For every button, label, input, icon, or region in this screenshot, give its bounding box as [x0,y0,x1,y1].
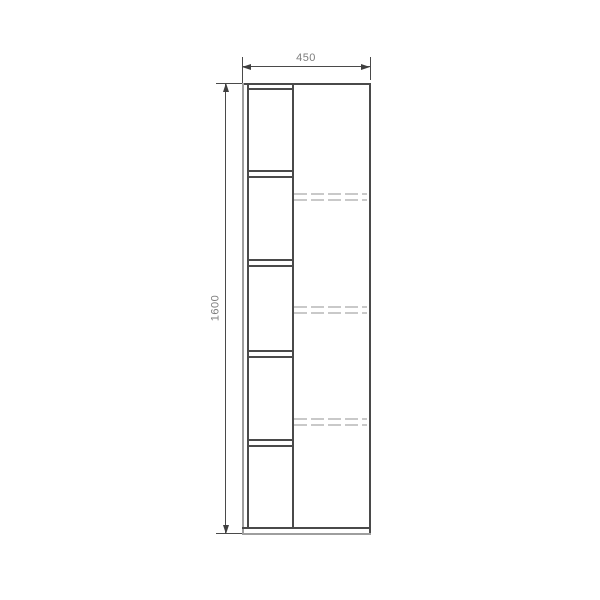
hidden-shelf-top-line [294,418,367,420]
hidden-shelf-bottom-line [294,424,367,426]
height-ext-line-top [216,83,242,84]
cabinet-divider [292,83,294,527]
hidden-shelf-bottom-line [294,199,367,201]
cabinet-bottom-inner-edge [242,527,369,529]
open-shelf-top-line [248,350,292,352]
hidden-shelf-top-line [294,193,367,195]
open-shelf-bottom-line [248,176,292,178]
hidden-shelf-top-line [294,306,367,308]
height-ext-line-bottom [216,533,242,534]
width-dimension-line [242,66,370,67]
hidden-shelf-bottom-line [294,312,367,314]
cabinet-right-edge [369,83,371,533]
width-dimension-label: 450 [294,53,318,64]
height-dimension-label: 1600 [211,293,222,323]
open-shelf-bottom-line [248,265,292,267]
open-shelf-bottom-line [248,356,292,358]
width-arrow-left [242,64,251,70]
cabinet-bottom-outer-edge [242,533,371,535]
cabinet-left-inner-edge [247,83,249,527]
height-arrow-up [223,83,229,92]
cabinet-top-edge [242,83,371,85]
open-shelf-bottom-line [248,445,292,447]
open-shelf-top-line [248,259,292,261]
height-arrow-down [223,525,229,534]
open-shelf-top-line [248,170,292,172]
technical-drawing-canvas: 450 1600 [0,0,600,600]
cabinet-left-outer-edge [242,83,244,533]
open-shelf-top-line [248,439,292,441]
width-ext-line-left [242,57,243,83]
height-dimension-line [225,83,226,534]
cabinet-top-inner-edge [247,88,294,90]
width-arrow-right [361,64,370,70]
